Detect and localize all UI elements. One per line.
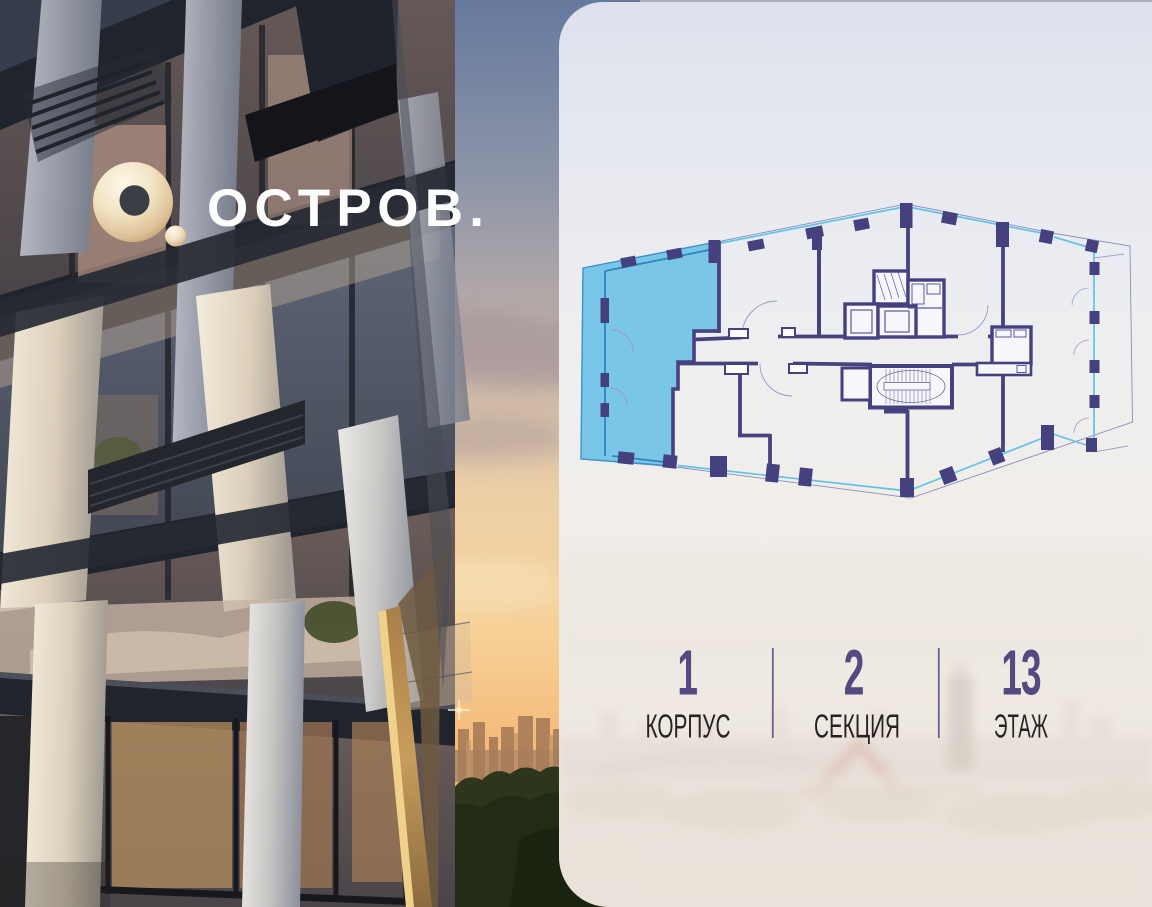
svg-text:ОСТРОВ.: ОСТРОВ. — [207, 179, 484, 238]
svg-text:КОРПУС: КОРПУС — [646, 707, 731, 744]
svg-text:13: 13 — [1001, 638, 1040, 709]
svg-text:ЭТАЖ: ЭТАЖ — [994, 707, 1048, 744]
svg-text:1: 1 — [677, 638, 698, 709]
svg-text:СЕКЦИЯ: СЕКЦИЯ — [814, 707, 900, 744]
svg-text:2: 2 — [844, 638, 865, 709]
